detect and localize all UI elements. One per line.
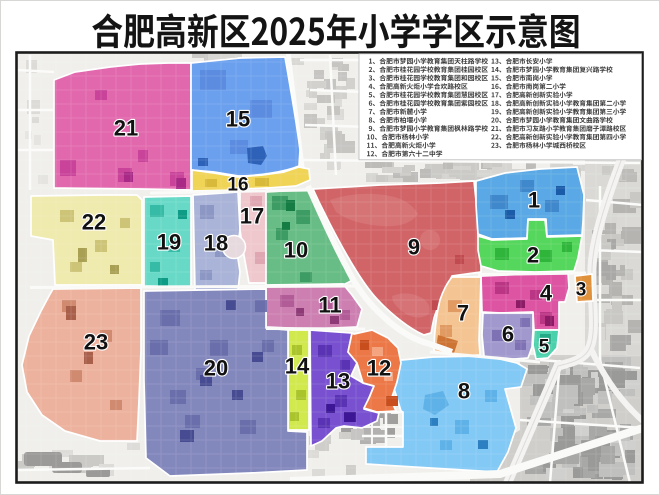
svg-text:8: 8 — [458, 379, 470, 404]
svg-text:14: 14 — [285, 354, 310, 379]
svg-text:16: 16 — [227, 175, 248, 196]
svg-text:20: 20 — [204, 356, 228, 381]
svg-text:3: 3 — [576, 280, 587, 301]
svg-text:15: 15 — [226, 107, 250, 132]
svg-text:5: 5 — [539, 337, 550, 358]
svg-text:22: 22 — [82, 210, 106, 235]
svg-text:9: 9 — [408, 235, 420, 260]
svg-text:11: 11 — [318, 293, 341, 318]
svg-text:1: 1 — [528, 188, 540, 213]
svg-text:23: 23 — [84, 330, 108, 355]
svg-text:10: 10 — [284, 238, 308, 263]
svg-text:2: 2 — [527, 243, 539, 268]
svg-text:19: 19 — [157, 230, 181, 255]
svg-text:6: 6 — [502, 322, 514, 347]
svg-text:4: 4 — [540, 281, 553, 306]
svg-text:13: 13 — [326, 369, 350, 394]
svg-text:7: 7 — [457, 301, 469, 326]
svg-text:18: 18 — [204, 231, 228, 256]
svg-text:12: 12 — [367, 356, 391, 381]
svg-text:21: 21 — [114, 116, 138, 141]
svg-text:17: 17 — [240, 204, 264, 229]
